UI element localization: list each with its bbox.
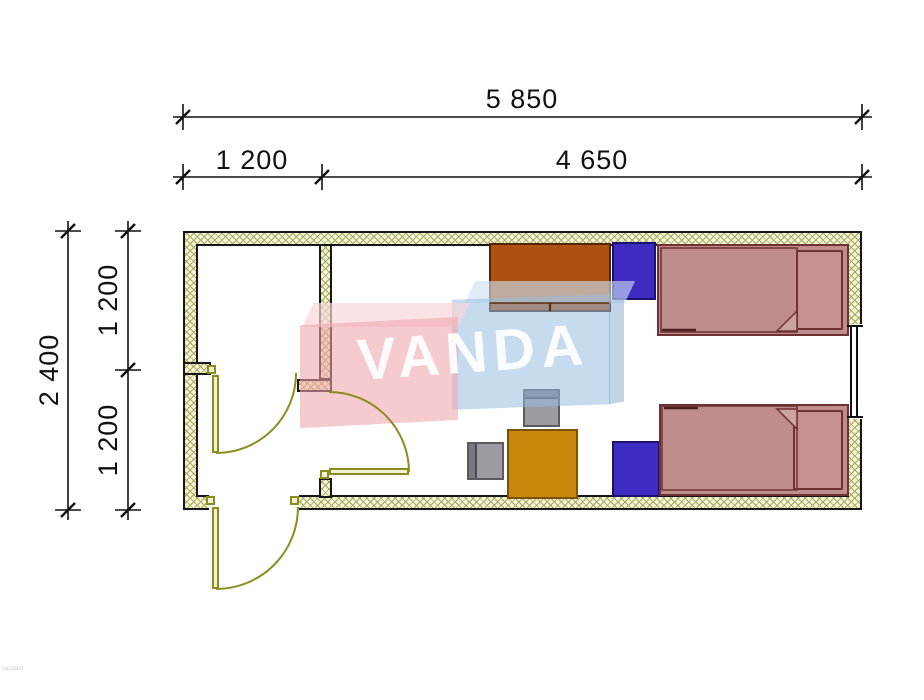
dim-horizontal-total-label: 5 850 [452,83,592,115]
nightstand-bottom [612,441,660,497]
pillow-bottom [793,410,843,490]
room-door-leaf [329,468,409,475]
entry-door-jamb-left [206,496,215,505]
chair-left [467,442,504,480]
entry-door-jamb-right [290,496,299,505]
dim-vertical-total-label: 2 400 [33,300,65,440]
partition-wall-lower-stub [319,478,332,498]
pillow-top [796,250,843,330]
dim-vertical-seg1-label: 1 200 [92,230,124,370]
dim-horizontal-seg1-label: 1 200 [182,144,322,176]
entry-door-leaf [212,507,219,589]
dim-vertical-seg2-label: 1 200 [92,370,124,510]
room-door-hinge [320,470,329,479]
corner-note: vanda.lt [2,666,23,672]
vestibule-door-leaf [212,375,219,453]
chair-left-backrest [469,444,477,478]
floor-plan-drawing: 5 850 1 200 4 650 2 400 1 200 1 200 VAND… [0,0,924,700]
vestibule-door-hinge [207,365,216,374]
entry-door-opening [209,494,299,514]
dim-horizontal-seg2-label: 4 650 [522,144,662,176]
entry-door-swing-arc [216,507,298,589]
table [507,429,578,499]
